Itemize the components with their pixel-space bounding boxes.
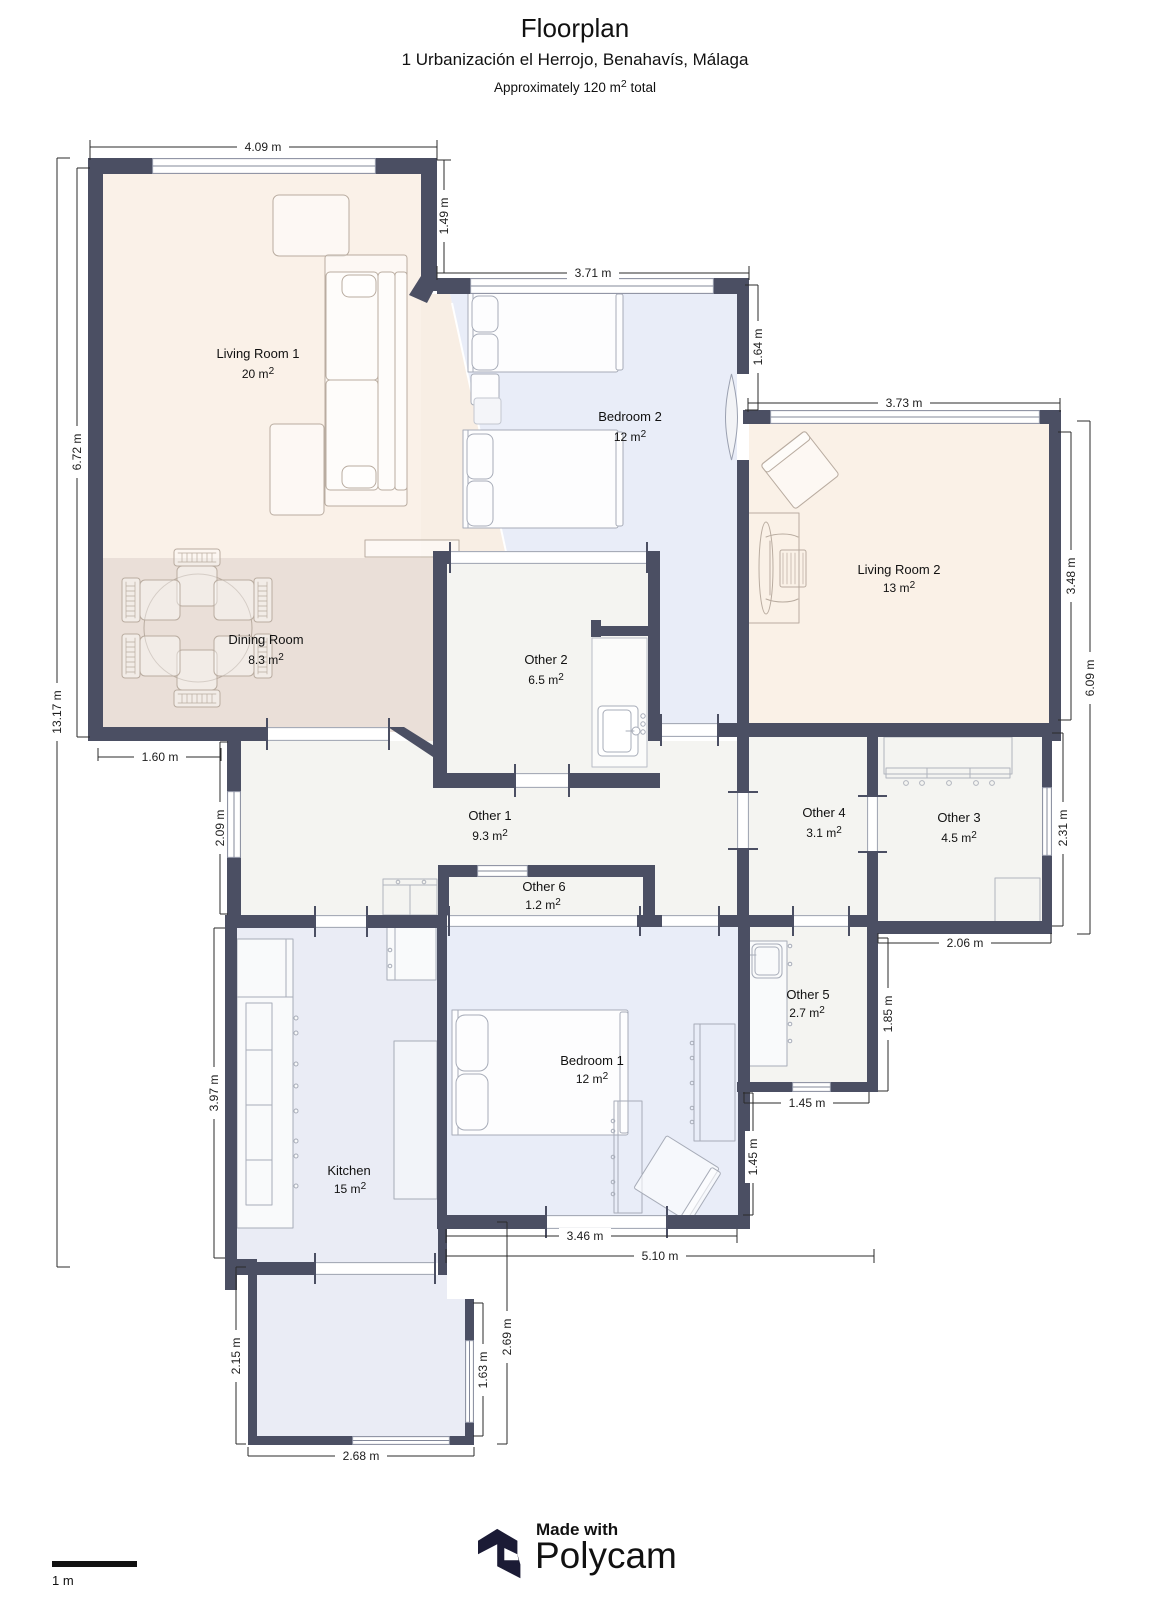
svg-text:2.31 m: 2.31 m: [1056, 810, 1070, 847]
svg-text:4.09 m: 4.09 m: [245, 140, 282, 154]
svg-text:Other 2: Other 2: [524, 652, 567, 667]
svg-text:3.71 m: 3.71 m: [575, 266, 612, 280]
svg-text:3.46 m: 3.46 m: [567, 1229, 604, 1243]
svg-text:5.10 m: 5.10 m: [642, 1249, 679, 1263]
svg-text:Other 3: Other 3: [937, 810, 980, 825]
svg-text:2.09 m: 2.09 m: [213, 810, 227, 847]
svg-text:13.17 m: 13.17 m: [50, 690, 64, 733]
svg-text:2.15 m: 2.15 m: [229, 1338, 243, 1375]
svg-text:3.73 m: 3.73 m: [886, 396, 923, 410]
svg-text:Other 4: Other 4: [802, 805, 845, 820]
svg-text:Floorplan: Floorplan: [521, 13, 629, 43]
svg-text:Bedroom 2: Bedroom 2: [598, 409, 662, 424]
svg-text:2.06 m: 2.06 m: [947, 936, 984, 950]
svg-text:1.85 m: 1.85 m: [881, 996, 895, 1033]
svg-text:3.48 m: 3.48 m: [1064, 558, 1078, 595]
svg-text:6.09 m: 6.09 m: [1083, 660, 1097, 697]
svg-text:Other 6: Other 6: [522, 879, 565, 894]
svg-text:Dining Room: Dining Room: [228, 632, 303, 647]
svg-text:1.64 m: 1.64 m: [751, 329, 765, 366]
svg-text:1.60 m: 1.60 m: [142, 750, 179, 764]
svg-text:1.45 m: 1.45 m: [746, 1139, 760, 1176]
svg-text:1.63 m: 1.63 m: [476, 1352, 490, 1389]
svg-text:1.49 m: 1.49 m: [437, 198, 451, 235]
svg-text:6.72 m: 6.72 m: [70, 434, 84, 471]
svg-text:Living Room 1: Living Room 1: [216, 346, 299, 361]
svg-text:2.69 m: 2.69 m: [500, 1319, 514, 1356]
svg-text:1.45 m: 1.45 m: [789, 1096, 826, 1110]
svg-text:Approximately 120 m2 total: Approximately 120 m2 total: [494, 78, 656, 95]
svg-text:Polycam: Polycam: [535, 1535, 677, 1576]
svg-text:1 m: 1 m: [52, 1573, 74, 1588]
svg-text:3.97 m: 3.97 m: [207, 1075, 221, 1112]
svg-text:Kitchen: Kitchen: [327, 1163, 370, 1178]
svg-text:Bedroom 1: Bedroom 1: [560, 1053, 624, 1068]
svg-text:1 Urbanización el Herrojo, Ben: 1 Urbanización el Herrojo, Benahavís, Má…: [402, 50, 749, 69]
svg-text:Other 1: Other 1: [468, 808, 511, 823]
svg-text:Other 5: Other 5: [786, 987, 829, 1002]
svg-text:2.68 m: 2.68 m: [343, 1449, 380, 1463]
svg-text:Living Room 2: Living Room 2: [857, 562, 940, 577]
